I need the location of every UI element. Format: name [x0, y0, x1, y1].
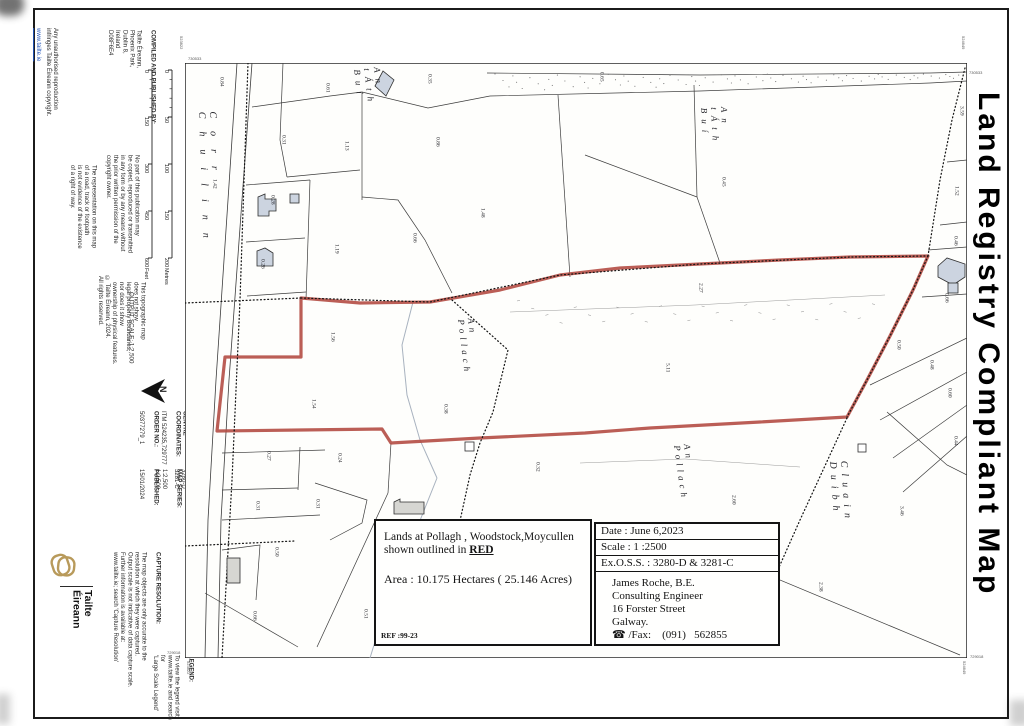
parcel-area-label: 3.59 — [958, 106, 964, 116]
parcel-area-label: 0.84 — [218, 77, 224, 87]
north-label: N — [158, 386, 168, 393]
townland-name: An tÁth Buí — [699, 106, 731, 147]
parcel-area-label: 0.27 — [265, 451, 271, 461]
parcel-area-label: 0.31 — [254, 501, 260, 511]
parcel-area-label: 0.65 — [598, 72, 604, 82]
svg-text:600: 600 — [143, 258, 149, 267]
scan-smudge — [0, 694, 10, 724]
parcel-area-label: 0.51 — [362, 609, 368, 619]
svg-text:0: 0 — [163, 70, 169, 73]
copyright-note: © Tailte Éireann, 2024. All rights reser… — [96, 276, 110, 338]
parcel-area-label: 0.66 — [411, 233, 417, 243]
lands-line: Lands at Pollagh , Woodstock,Moycullen — [384, 531, 590, 543]
corner-coordinate: 729018 — [167, 650, 180, 655]
tailte-eireann-logo-icon — [46, 546, 82, 588]
parcel-area-label: 1.13 — [343, 141, 349, 151]
tailte-website-link: www.tailte.ie — [34, 28, 41, 61]
parcel-area-label: 0.66 — [943, 293, 949, 303]
svg-text:Feet: Feet — [143, 268, 149, 279]
ref-number: REF :99-23 — [381, 631, 418, 640]
corner-coordinate: 523822 — [179, 36, 184, 49]
parcel-area-label: 2.60 — [730, 495, 736, 505]
parcel-area-label: 0.32 — [534, 462, 540, 472]
compiled-by-address: Tailte Éireann, Phoenix Park, Dublin 8, … — [106, 30, 141, 124]
order-no-block: ORDER NO.: 50377279_1 — [130, 411, 165, 447]
parcel-area-label: 1.56 — [329, 332, 335, 342]
parcel-area-label: 0.26 — [259, 259, 265, 269]
output-scale: OUTPUT SCALE: 1:2,500 — [127, 292, 134, 363]
parcel-area-label: 1.54 — [310, 399, 316, 409]
parcel-area-label: 1.19 — [333, 244, 339, 254]
no-part-note: No part of this publication may be copie… — [104, 155, 139, 253]
parcel-area-label: 0.31 — [314, 499, 320, 509]
date-row: Date : June 6,2023 — [596, 524, 778, 540]
corner-coordinate: 730533 — [188, 56, 201, 61]
parcel-area-label: 0.60 — [946, 388, 952, 398]
scan-smudge — [0, 0, 24, 16]
parcel-area-label: 0.28 — [269, 195, 275, 205]
svg-text:450: 450 — [143, 211, 149, 220]
unauthorised-note: Any unauthorised reproduction infringes … — [44, 28, 58, 116]
area-line: Area : 10.175 Hectares ( 25.146 Acres) — [384, 572, 590, 587]
scan-smudge — [1010, 700, 1024, 726]
parcel-area-label: 0.35 — [426, 74, 432, 84]
corner-coordinate: 524649 — [962, 661, 967, 674]
lands-description-box: Lands at Pollagh , Woodstock,Moycullen s… — [374, 519, 592, 646]
corner-coordinate: 524649 — [961, 36, 966, 49]
corner-coordinate: 729018 — [970, 654, 983, 659]
logo-divider — [60, 586, 93, 587]
townland-name: Cluain Duibh — [827, 460, 853, 525]
outlined-line: shown outlined in RED — [384, 544, 590, 556]
svg-text:0: 0 — [143, 70, 149, 73]
svg-text:150: 150 — [143, 117, 149, 126]
parcel-area-label: 0.38 — [442, 404, 448, 414]
parcel-area-label: 0.31 — [280, 135, 286, 145]
corner-coordinate: 523822 — [186, 661, 191, 674]
parcel-area-label: 2.27 — [697, 283, 703, 293]
representation-note: The representation on this map of a road… — [68, 165, 96, 249]
parcel-area-label: 0.61 — [324, 83, 330, 93]
parcel-area-label: 3.46 — [898, 506, 904, 516]
engineer-contact: James Roche, B.E. Consulting Engineer 16… — [596, 572, 778, 642]
corner-coordinate: 730533 — [969, 70, 982, 75]
scale-bars: 0150300450600Feet050100150200Metres — [138, 63, 186, 308]
parcel-area-label: 0.48 — [928, 360, 934, 370]
parcel-area-label: 1.52 — [953, 186, 959, 196]
parcel-area-label: 0.66 — [251, 611, 257, 621]
exoss-row: Ex.O.S.S. : 3280-D & 3281-C — [596, 556, 778, 572]
scale-bar-graphic: 0150300450600Feet050100150200Metres — [138, 63, 186, 308]
legend-block: LEGEND: To view the legend visit www.tai… — [144, 655, 201, 724]
svg-text:50: 50 — [163, 117, 169, 123]
parcel-area-label: 0.86 — [434, 137, 440, 147]
parcel-area-label: 0.46 — [952, 236, 958, 246]
parcel-area-label: 1.42 — [211, 179, 217, 189]
svg-text:150: 150 — [163, 211, 169, 220]
tailte-eireann-wordmark: Tailte Éireann — [70, 590, 93, 629]
parcel-area-label: 2.38 — [817, 582, 823, 592]
scale-row: Scale : 1 :2500 — [596, 540, 778, 556]
red-word: RED — [469, 544, 493, 556]
svg-text:Metres: Metres — [163, 268, 169, 285]
svg-text:200: 200 — [163, 258, 169, 267]
parcel-area-label: 0.50 — [895, 340, 901, 350]
townland-name: An tÁth Buí — [352, 66, 387, 108]
parcel-area-label: 0.45 — [720, 177, 726, 187]
page-title: Land Registry Compliant Map — [971, 92, 1005, 596]
svg-text:100: 100 — [163, 164, 169, 173]
parcel-area-label: 1.48 — [479, 208, 485, 218]
scanned-map-page: { "page": {"right_title": "Land Registry… — [0, 0, 1024, 724]
parcel-area-label: 0.44 — [952, 436, 958, 446]
svg-text:300: 300 — [143, 164, 149, 173]
parcel-area-label: 0.24 — [336, 453, 342, 463]
parcel-area-label: 0.50 — [273, 547, 279, 557]
details-box: Date : June 6,2023 Scale : 1 :2500 Ex.O.… — [594, 522, 780, 646]
parcel-area-label: 5.11 — [664, 363, 670, 372]
